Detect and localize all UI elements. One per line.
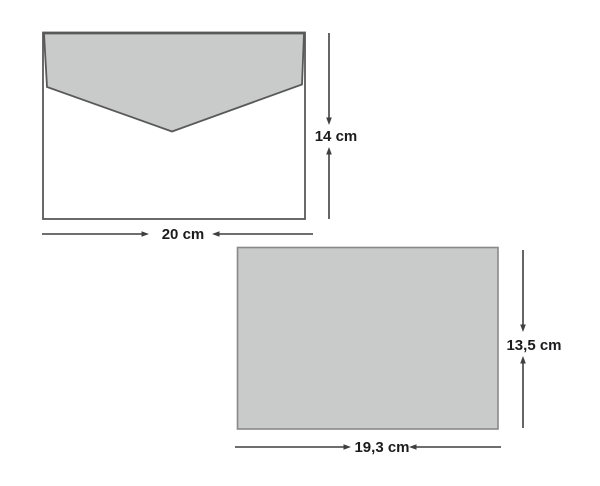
- envelope-width-label: 20 cm: [162, 226, 205, 243]
- card-figure: 13,5 cm 19,3 cm: [235, 248, 562, 457]
- arrowhead-left-icon: [409, 444, 417, 450]
- arrowhead-right-icon: [344, 444, 352, 450]
- arrowhead-left-icon: [212, 231, 220, 237]
- card-width-label: 19,3 cm: [354, 439, 409, 456]
- arrowhead-down-icon: [520, 325, 526, 333]
- card-body: [238, 248, 499, 430]
- envelope-width-dimension: 20 cm: [42, 226, 313, 243]
- envelope-height-label: 14 cm: [315, 128, 358, 145]
- card-height-dimension: 13,5 cm: [506, 250, 561, 428]
- diagram-svg: 14 cm 20 cm 13,5 cm: [0, 0, 600, 486]
- arrowhead-up-icon: [520, 356, 526, 364]
- envelope-height-dimension: 14 cm: [315, 33, 358, 219]
- card-width-dimension: 19,3 cm: [235, 439, 501, 456]
- envelope-figure: 14 cm 20 cm: [42, 33, 357, 244]
- arrowhead-up-icon: [326, 147, 332, 155]
- envelope-card-diagram: 14 cm 20 cm 13,5 cm: [0, 0, 600, 486]
- arrowhead-down-icon: [326, 118, 332, 126]
- arrowhead-right-icon: [142, 231, 150, 237]
- card-height-label: 13,5 cm: [506, 337, 561, 354]
